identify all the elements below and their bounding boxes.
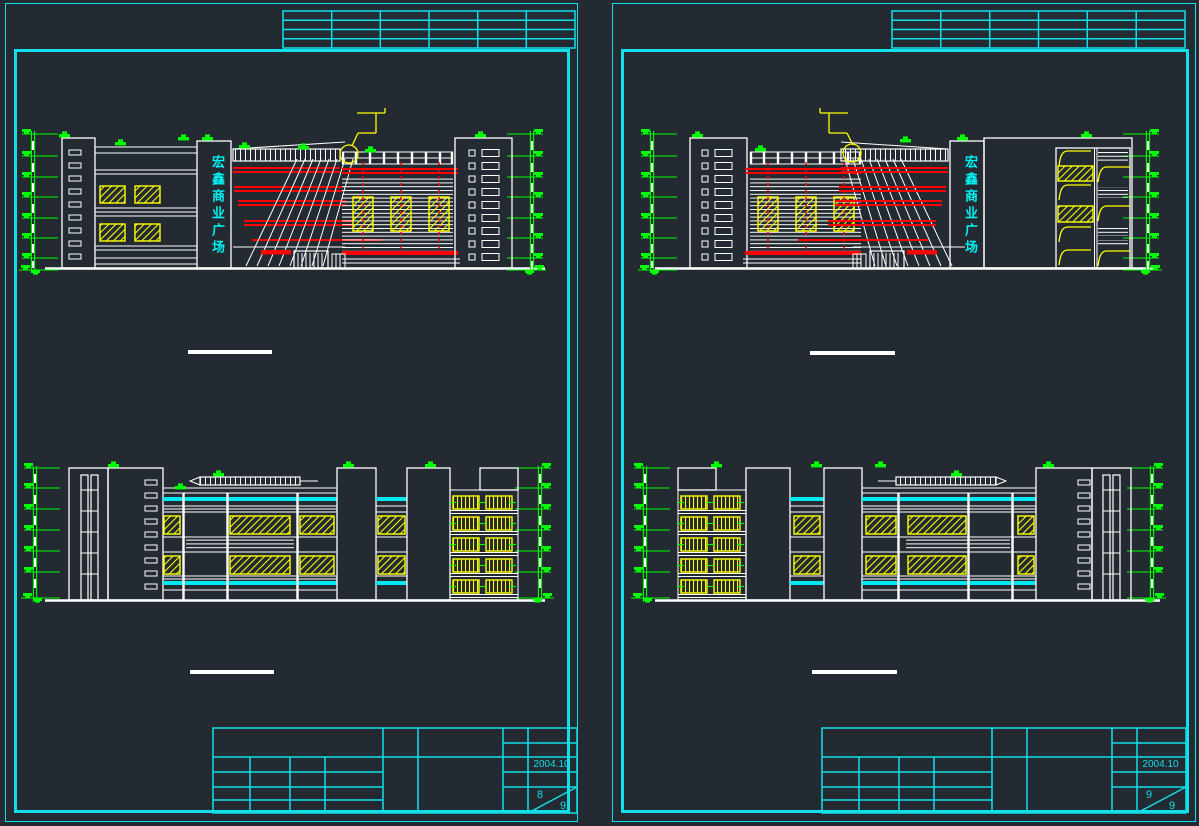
title-underline [188, 350, 272, 354]
sheet-right-drawing [631, 11, 1186, 813]
elevation-left-upper[interactable] [19, 108, 546, 354]
left-top-table [283, 11, 575, 48]
sheet-number-diagonal [528, 787, 577, 813]
right-title-block [822, 728, 1186, 813]
sheet-left-drawing [19, 11, 577, 813]
title-underline [812, 670, 897, 674]
left-date: 2004.10 [528, 759, 575, 770]
left-sheet-total: 9 [560, 800, 566, 812]
right-sheet-number: 9 [1146, 789, 1152, 801]
left-title-block [213, 728, 577, 813]
entrance-sign-band [907, 250, 937, 255]
building-sign-right: 宏鑫商业广场 [955, 150, 979, 262]
curtain-wall-fan [845, 159, 965, 266]
cad-canvas [0, 0, 1199, 826]
title-underline [190, 670, 274, 674]
entrance-doors [853, 253, 898, 268]
roof-markers [692, 131, 1092, 151]
sheet-number-diagonal [1137, 787, 1186, 813]
elevation-right-upper[interactable] [638, 108, 1162, 355]
right-date: 2004.10 [1137, 759, 1184, 770]
left-sheet-number: 8 [537, 789, 543, 801]
entrance-sign-band [261, 250, 291, 255]
curtain-wall-fan [233, 159, 353, 266]
elevation-right-lower[interactable] [631, 461, 1166, 674]
elevation-left-lower[interactable] [21, 461, 554, 674]
roof-markers [711, 461, 1054, 476]
title-underline [810, 351, 895, 355]
right-top-table [892, 11, 1185, 48]
roof-antenna [340, 108, 385, 163]
right-sheet-total: 9 [1169, 800, 1175, 812]
building-sign-left: 宏鑫商业广场 [202, 150, 226, 262]
